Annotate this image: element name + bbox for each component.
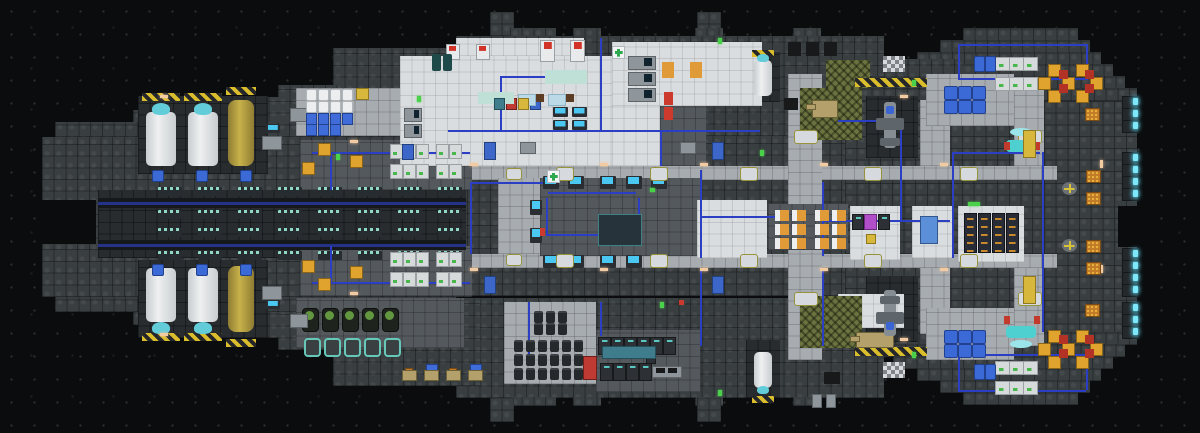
briefing-chair	[574, 368, 583, 380]
bed-pillow	[775, 224, 780, 235]
status-light-red	[679, 300, 684, 305]
bed-screen	[414, 126, 419, 134]
generator-unit	[390, 164, 403, 179]
power-cable	[600, 302, 602, 336]
hospital-bed-unit	[826, 394, 836, 408]
lab-freezer	[432, 54, 441, 71]
smes-core	[1085, 84, 1094, 93]
wall-light	[600, 268, 608, 271]
power-cable	[822, 268, 824, 346]
generator-unit	[1023, 77, 1038, 91]
medbay-floor	[612, 106, 660, 166]
hospital-bed-unit	[520, 142, 536, 154]
airlock-door	[794, 292, 818, 306]
hull-plate	[490, 398, 514, 422]
status-light-green	[718, 38, 722, 44]
power-cable	[448, 130, 760, 132]
briefing-chair	[562, 354, 571, 366]
bed-pillow	[832, 238, 837, 249]
gun-on-table	[824, 42, 837, 56]
generator-unit	[416, 164, 429, 179]
generator-unit	[1023, 57, 1038, 71]
thruster-glow	[1133, 178, 1138, 185]
smes-cell	[1038, 343, 1051, 356]
accelerator-coil	[278, 187, 302, 196]
airlock-door	[864, 254, 882, 268]
cargo-crate	[1086, 240, 1101, 253]
hull-plate	[510, 397, 556, 406]
accelerator-coil	[398, 187, 422, 196]
gold-torpedo	[228, 100, 254, 166]
space-notch	[42, 200, 96, 244]
thruster-glow	[1133, 262, 1138, 269]
briefing-chair	[562, 368, 571, 380]
accelerator-coil	[198, 228, 222, 237]
smes-cell	[302, 162, 315, 175]
power-cable	[1042, 152, 1044, 332]
airlock-door	[960, 167, 978, 181]
accelerator-coil	[358, 228, 382, 237]
briefing-chair	[514, 340, 523, 352]
thruster-glow	[1133, 98, 1138, 105]
bed-pillow	[792, 210, 797, 221]
wall-light	[900, 338, 908, 341]
power-cable	[958, 354, 960, 390]
bed-pillow	[815, 224, 820, 235]
accelerator-coil	[438, 187, 462, 196]
briefing-chair	[526, 354, 535, 366]
smes-core	[1059, 70, 1068, 79]
briefing-chair	[550, 340, 559, 352]
accelerator-coil	[158, 210, 182, 219]
hospital-bed-unit	[680, 142, 696, 154]
briefing-chair	[538, 340, 547, 352]
pod-ring-unit	[344, 338, 361, 357]
bridge-console	[626, 255, 642, 268]
medbay-floor	[697, 200, 767, 258]
accelerator-coil	[238, 210, 262, 219]
vending-machine-blue	[484, 276, 496, 294]
stasis-pod-window	[365, 311, 374, 320]
generator-unit	[416, 272, 429, 287]
cargo-crate	[1085, 304, 1100, 317]
stasis-pod-window	[385, 311, 394, 320]
sample-dish	[566, 94, 574, 102]
generator-unit	[436, 164, 449, 179]
briefing-chair	[538, 368, 547, 380]
missile-nose	[757, 386, 769, 394]
toilet	[330, 101, 341, 113]
wall-light	[350, 140, 358, 143]
turbine-unit	[964, 213, 977, 253]
washing-machine	[318, 124, 329, 136]
weapon-locker	[613, 363, 626, 381]
turbine-unit	[992, 213, 1005, 253]
vending-machine-blue	[712, 142, 724, 160]
railgun-core	[98, 202, 466, 205]
accelerator-coil	[318, 228, 342, 237]
teleporter-arm	[1004, 316, 1010, 324]
power-cable	[900, 120, 902, 220]
briefing-chair	[546, 311, 555, 323]
accelerator-coil	[158, 228, 182, 237]
bridge-console	[266, 124, 280, 133]
gas-canister	[985, 56, 996, 72]
wall-light	[820, 163, 828, 166]
teleporter-pad	[1006, 326, 1036, 338]
medical-machine	[570, 40, 585, 62]
accelerator-coil	[438, 228, 462, 237]
briefing-chair	[538, 354, 547, 366]
smes-cell	[1038, 77, 1051, 90]
smes-cell	[318, 278, 331, 291]
wall-light	[600, 163, 608, 166]
weapon-locker	[852, 214, 864, 230]
thruster-glow	[1133, 154, 1138, 161]
stasis-pod-window	[345, 311, 354, 320]
airlock-door	[740, 254, 758, 268]
accelerator-coil	[198, 251, 222, 260]
missile-nose	[194, 322, 212, 334]
briefing-chair	[550, 354, 559, 366]
power-cable	[958, 44, 1086, 46]
airlock-door	[650, 167, 668, 181]
status-light-green	[660, 302, 664, 308]
generator-unit	[403, 164, 416, 179]
missile	[188, 268, 218, 322]
bed-screen	[644, 74, 652, 82]
tall-cabinet-yellow	[356, 88, 369, 100]
gas-canister	[972, 344, 986, 358]
space-notch	[1118, 206, 1140, 247]
gas-canister	[958, 100, 972, 114]
generator-unit	[403, 252, 416, 267]
briefing-chair	[526, 340, 535, 352]
hospital-bed-unit	[262, 136, 282, 150]
gas-canister	[944, 86, 958, 100]
chem-dispenser	[920, 216, 938, 244]
missile-nose	[757, 54, 769, 62]
gas-canister	[958, 344, 972, 358]
accelerator-coil	[358, 187, 382, 196]
smes-core	[1085, 349, 1094, 358]
accelerator-coil	[398, 210, 422, 219]
generator-unit	[1023, 361, 1038, 375]
missile	[754, 352, 772, 388]
server-rack	[598, 214, 642, 246]
accelerator-coil	[198, 187, 222, 196]
status-light-red	[664, 107, 673, 120]
accelerator-coil	[278, 228, 302, 237]
smes-cell	[350, 155, 363, 168]
wall-light	[470, 268, 478, 271]
bridge-console	[530, 200, 542, 215]
wall-light	[470, 163, 478, 166]
missile-nose	[152, 103, 170, 115]
vent-fan	[1062, 239, 1077, 252]
status-light-green	[912, 352, 916, 358]
gas-canister	[196, 170, 208, 182]
accelerator-coil	[238, 187, 262, 196]
airlock-door	[556, 254, 574, 268]
gas-canister	[944, 100, 958, 114]
gun-on-table	[806, 42, 819, 56]
cargo-crate	[1086, 170, 1101, 183]
generator-unit	[436, 272, 449, 287]
power-cable	[958, 44, 960, 80]
bed-pillow	[815, 238, 820, 249]
power-cable	[470, 182, 472, 254]
smes-core	[1085, 335, 1094, 344]
lab-freezer	[443, 54, 452, 71]
cryo-sleeper	[553, 107, 568, 117]
hospital-bed-unit	[290, 314, 308, 328]
thruster-glow	[1133, 274, 1138, 281]
power-cable	[528, 302, 530, 362]
missile	[754, 60, 772, 96]
bed-pillow	[832, 210, 837, 221]
kitchen-counter	[602, 346, 656, 359]
tall-cabinet-yellow	[1023, 276, 1036, 304]
missile-nose	[194, 103, 212, 115]
wall-light	[820, 268, 828, 271]
bed-pillow	[815, 210, 820, 221]
power-cable	[546, 234, 600, 236]
accelerator-coil	[358, 210, 382, 219]
hazard-stripes	[752, 396, 774, 403]
wall-light	[700, 268, 708, 271]
power-cable	[600, 38, 602, 130]
fighter-wing	[876, 118, 904, 130]
fighter-wing	[880, 296, 900, 304]
ground-vehicle-tan	[850, 336, 860, 342]
generator-unit	[390, 252, 403, 267]
generator-unit	[1023, 381, 1038, 395]
wall-light	[940, 268, 948, 271]
fighter-cockpit	[886, 322, 894, 330]
accelerator-coil	[238, 251, 262, 260]
briefing-chair	[558, 311, 567, 323]
hazard-stripes	[226, 87, 256, 95]
bed-screen	[644, 90, 652, 98]
teleporter-arm	[1034, 316, 1040, 324]
status-light-green	[718, 390, 722, 396]
briefing-chair	[534, 323, 543, 335]
canteen-table	[424, 370, 439, 381]
medical-machine	[540, 40, 555, 62]
missile	[146, 268, 176, 322]
gun-on-table	[824, 372, 840, 384]
status-light-green	[417, 96, 421, 102]
hospital-bed-unit	[262, 286, 282, 300]
gas-canister	[152, 170, 164, 182]
canteen-table	[402, 370, 417, 381]
thruster-glow	[1133, 286, 1138, 293]
accelerator-coil	[238, 228, 262, 237]
generator-unit	[449, 252, 462, 267]
operating-table	[548, 94, 566, 106]
teleporter-disc	[1010, 340, 1032, 348]
airlock-door	[794, 130, 818, 144]
wall-light	[940, 163, 948, 166]
thruster-glow	[1133, 304, 1138, 311]
gas-canister	[152, 264, 164, 276]
thruster-glow	[1133, 250, 1138, 257]
briefing-chair	[562, 340, 571, 352]
generator-unit	[436, 252, 449, 267]
hospital-bed-unit	[812, 394, 822, 408]
toilet	[342, 89, 353, 101]
generator-unit	[1009, 77, 1024, 91]
gun-on-table	[788, 42, 801, 56]
accelerator-coil	[278, 251, 302, 260]
gas-canister	[240, 170, 252, 182]
accelerator-coil	[158, 187, 182, 196]
missile	[146, 112, 176, 166]
status-light-green	[760, 150, 764, 156]
kitchen-counter	[494, 98, 505, 110]
toilet	[318, 89, 329, 101]
railgun-core	[98, 244, 466, 247]
cryo-sleeper	[553, 120, 568, 130]
turbine-unit	[978, 213, 991, 253]
briefing-chair	[526, 368, 535, 380]
pod-ring-unit	[384, 338, 401, 357]
gas-canister	[974, 364, 985, 380]
gas-canister	[944, 344, 958, 358]
vending-machine-red	[583, 356, 597, 380]
status-light-green	[912, 80, 916, 86]
generator-unit	[449, 272, 462, 287]
power-cable	[700, 268, 702, 346]
wall-light	[160, 95, 168, 98]
accelerator-coil	[198, 210, 222, 219]
thruster-glow	[1133, 328, 1138, 335]
accelerator-coil	[158, 251, 182, 260]
teleporter-arm	[1004, 142, 1010, 150]
medbay-sign-cross	[612, 46, 625, 59]
status-light-green	[968, 202, 980, 206]
power-cable	[470, 182, 544, 184]
thruster-glow	[1133, 166, 1138, 173]
power-cable	[330, 246, 332, 282]
generator-unit	[995, 361, 1010, 375]
bed-pillow	[792, 238, 797, 249]
bridge-console	[266, 300, 280, 309]
generator-unit	[995, 77, 1010, 91]
wall-light	[900, 95, 908, 98]
ship-map[interactable]	[0, 0, 1200, 433]
bridge-console	[600, 255, 616, 268]
wall-light	[160, 333, 168, 336]
gun-on-table	[656, 368, 665, 373]
medbay-sign-cross	[547, 170, 560, 183]
turbine-unit	[1006, 213, 1019, 253]
smes-core	[1059, 335, 1068, 344]
briefing-chair	[550, 368, 559, 380]
hazard-stripes	[184, 93, 222, 101]
hazard-stripes	[855, 347, 927, 356]
toilet	[306, 89, 317, 101]
tall-cabinet-yellow	[1023, 130, 1036, 158]
generator-unit	[449, 144, 462, 159]
dorm-bed	[662, 62, 674, 78]
generator-unit	[1009, 57, 1024, 71]
power-cable	[952, 152, 954, 258]
status-light-red	[664, 92, 673, 105]
dorm-bed	[690, 62, 702, 78]
generator-unit	[1009, 381, 1024, 395]
hospital-bed-unit	[404, 108, 422, 122]
pod-ring-unit	[324, 338, 341, 357]
wall-light	[350, 292, 358, 295]
toilet	[342, 101, 353, 113]
smes-cell	[302, 260, 315, 273]
washing-machine	[342, 113, 353, 125]
generator-unit	[1009, 361, 1024, 375]
bed-pillow	[792, 224, 797, 235]
smes-core	[1059, 349, 1068, 358]
gas-canister	[944, 330, 958, 344]
gas-canister	[240, 264, 252, 276]
accelerator-coil	[398, 228, 422, 237]
vending-machine-blue	[712, 276, 724, 294]
bed-pillow	[775, 210, 780, 221]
generator-unit	[390, 272, 403, 287]
weapon-locker	[626, 363, 639, 381]
airlock-door	[864, 167, 882, 181]
generator-unit	[416, 144, 429, 159]
medical-machine	[476, 44, 490, 60]
missile	[188, 112, 218, 166]
briefing-chair	[574, 354, 583, 366]
briefing-chair	[514, 354, 523, 366]
weapon-locker	[663, 337, 676, 355]
briefing-chair	[534, 311, 543, 323]
thruster-glow	[1133, 190, 1138, 197]
wall-light	[700, 163, 708, 166]
cryo-sleeper	[572, 120, 587, 130]
cargo-crate	[1086, 192, 1101, 205]
pod-ring-unit	[364, 338, 381, 357]
status-light-green	[336, 154, 340, 160]
gas-canister	[985, 364, 996, 380]
smes-core	[1059, 84, 1068, 93]
tall-cabinet-yellow	[866, 234, 876, 244]
gas-canister	[958, 330, 972, 344]
airlock-door	[506, 254, 522, 266]
tall-cabinet-yellow	[518, 98, 529, 110]
airlock-door	[506, 168, 522, 180]
briefing-chair	[574, 340, 583, 352]
toilet	[330, 89, 341, 101]
briefing-chair	[558, 323, 567, 335]
thruster-glow	[1133, 316, 1138, 323]
toilet	[306, 101, 317, 113]
hazard-stripes	[226, 339, 256, 347]
bed-pillow	[832, 224, 837, 235]
canteen-table	[446, 370, 461, 381]
hazard-stripes	[855, 78, 927, 87]
vending-machine-blue	[484, 142, 496, 160]
briefing-chair	[514, 368, 523, 380]
generator-unit	[995, 381, 1010, 395]
washing-machine	[306, 124, 317, 136]
hull-plate	[697, 398, 721, 422]
hazard-stripes	[184, 333, 222, 341]
thruster-glow	[1133, 122, 1138, 129]
gas-canister	[972, 100, 986, 114]
